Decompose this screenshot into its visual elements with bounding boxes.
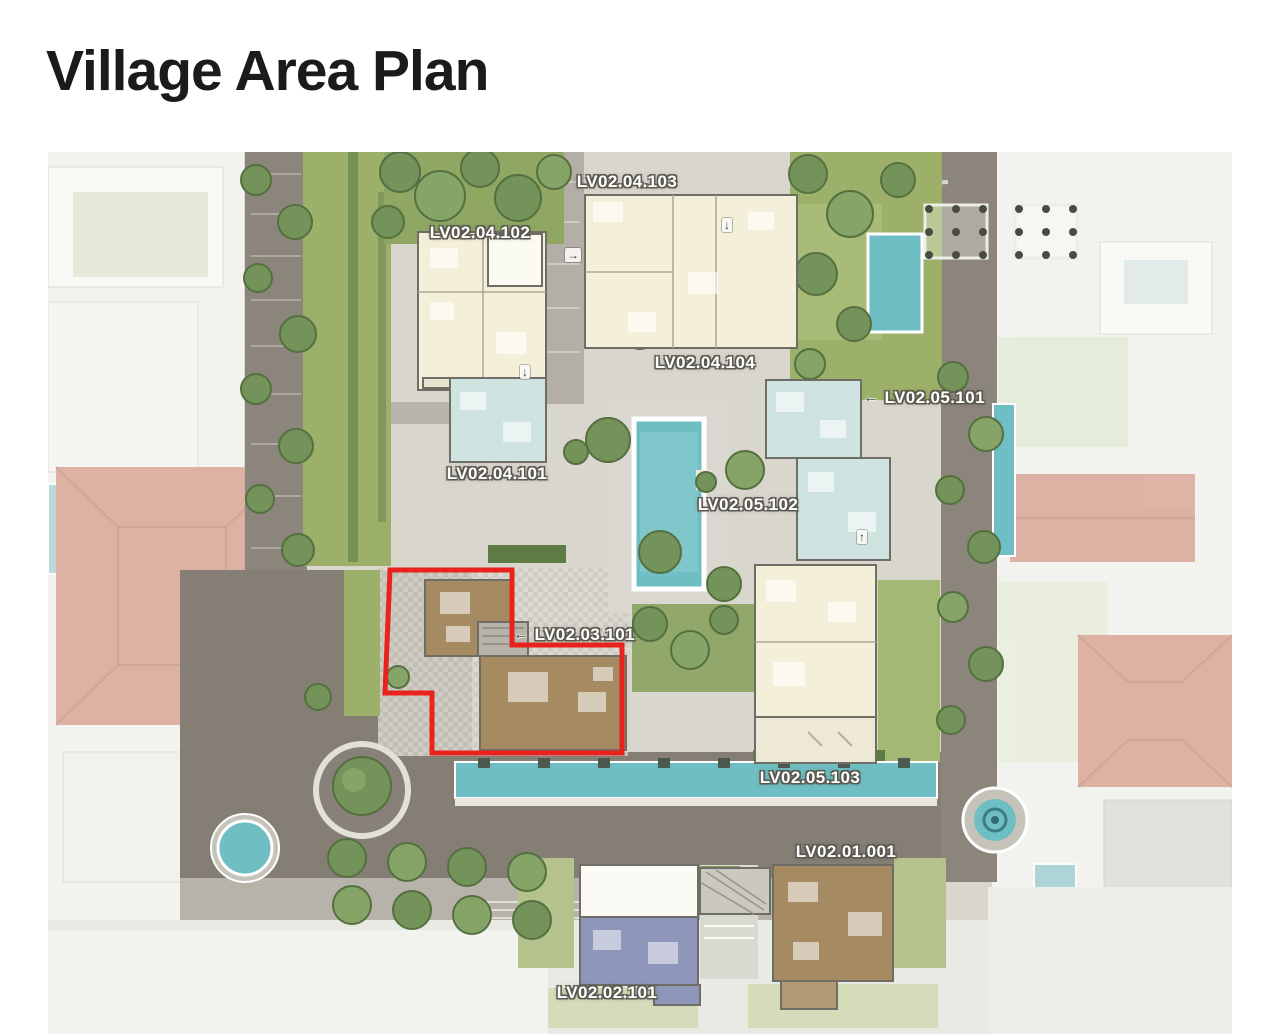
building-lv02-04-101 xyxy=(450,378,546,462)
unit-label-lv02-03-101: ←LV02.03.101 xyxy=(513,625,635,645)
down-arrow-icon: ↓ xyxy=(722,218,732,232)
unit-label-text: LV02.03.101 xyxy=(534,625,635,645)
unit-label-text: LV02.02.101 xyxy=(557,983,658,1003)
unit-label-text: LV02.05.101 xyxy=(884,388,985,408)
down-arrow-icon: ↓ xyxy=(520,365,530,379)
unit-label-text: LV02.04.102 xyxy=(430,223,531,243)
unit-label-text: LV02.04.103 xyxy=(577,172,678,192)
unit-label-lv02-02-101: LV02.02.101 xyxy=(557,983,658,1003)
left-arrow-icon: ← xyxy=(513,626,529,644)
unit-label-lv02-04-102: LV02.04.102 xyxy=(430,223,531,243)
unit-label-lv02-01-001: LV02.01.001 xyxy=(796,842,897,862)
building-lv02-05-102 xyxy=(797,458,890,560)
building-lv02-04-103-104 xyxy=(585,195,797,348)
right-arrow-icon: → xyxy=(565,248,581,262)
page-title: Village Area Plan xyxy=(46,38,488,104)
unit-label-lv02-05-101: ←LV02.05.101 xyxy=(863,388,985,408)
unit-label-lv02-05-102: LV02.05.102 xyxy=(698,495,799,515)
building-lv02-05-103 xyxy=(755,565,876,763)
unit-label-lv02-05-103: LV02.05.103 xyxy=(760,768,861,788)
unit-label-text: LV02.01.001 xyxy=(796,842,897,862)
up-arrow-icon: ↑ xyxy=(857,530,867,544)
unit-label-text: LV02.05.102 xyxy=(698,495,799,515)
site-plan-illustration xyxy=(48,152,1232,1034)
building-lv02-05-101 xyxy=(766,380,861,458)
village-area-plan-map[interactable]: LV02.04.103 LV02.04.102 LV02.04.104 ←LV0… xyxy=(48,152,1232,1034)
left-arrow-icon: ← xyxy=(863,389,879,407)
unit-label-text: LV02.04.104 xyxy=(655,353,756,373)
unit-label-lv02-04-104: LV02.04.104 xyxy=(655,353,756,373)
unit-label-lv02-04-103: LV02.04.103 xyxy=(577,172,678,192)
unit-label-text: LV02.04.101 xyxy=(447,464,548,484)
unit-label-text: LV02.05.103 xyxy=(760,768,861,788)
unit-label-lv02-04-101: LV02.04.101 xyxy=(447,464,548,484)
